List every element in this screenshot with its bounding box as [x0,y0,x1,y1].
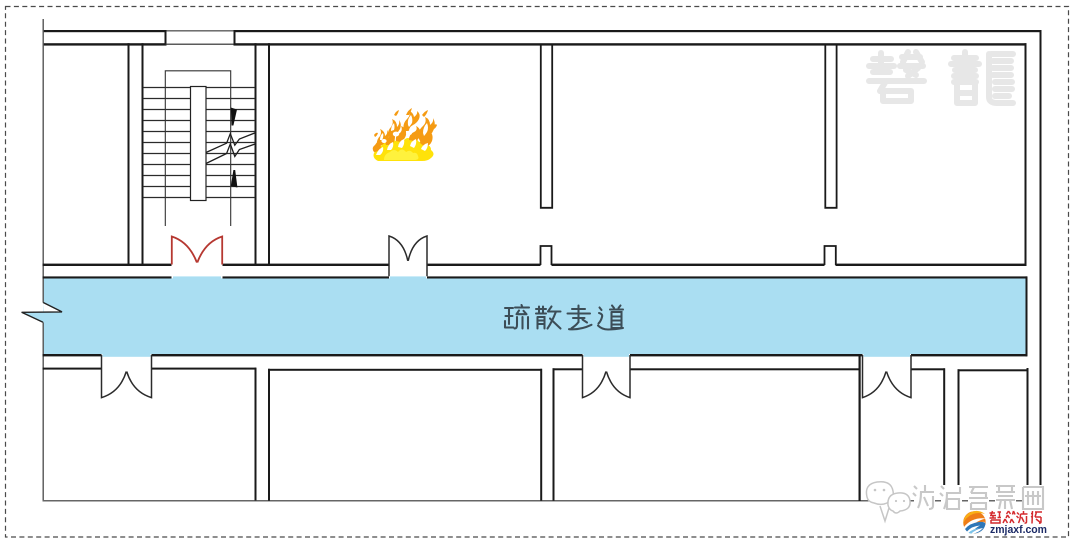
svg-text:zmjaxf.com: zmjaxf.com [990,524,1047,536]
